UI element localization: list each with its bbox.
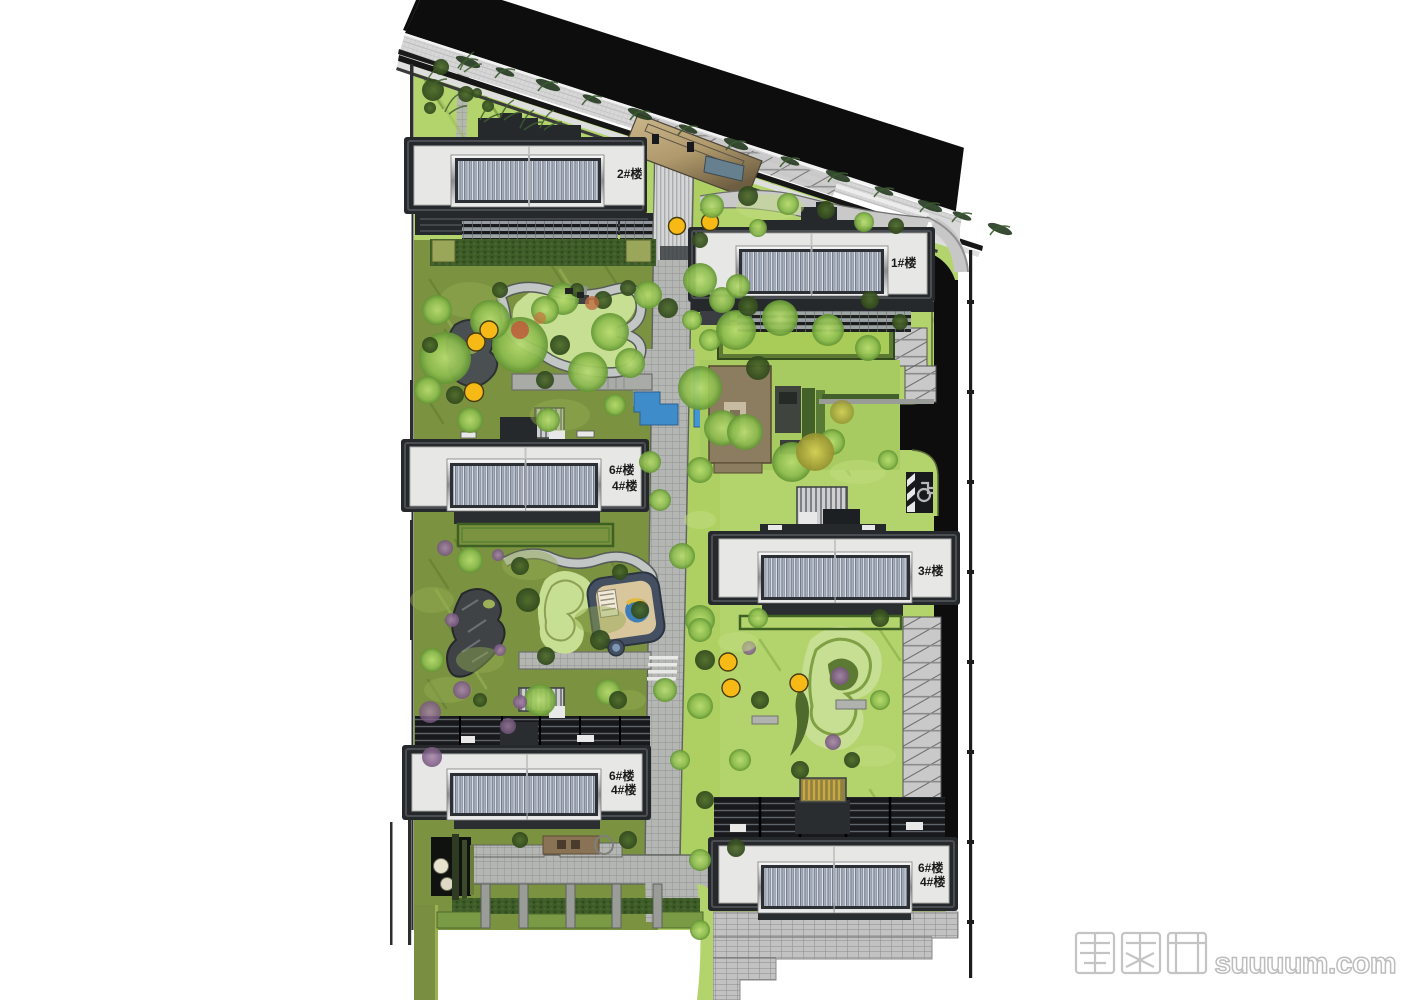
svg-text:suuuum.com: suuuum.com (1214, 947, 1396, 980)
svg-text:3#楼: 3#楼 (918, 563, 943, 578)
svg-text:6#楼: 6#楼 (609, 462, 634, 477)
svg-text:4#楼: 4#楼 (612, 478, 637, 493)
svg-text:6#楼: 6#楼 (918, 860, 943, 875)
svg-text:6#楼: 6#楼 (609, 768, 634, 783)
svg-text:4#楼: 4#楼 (920, 874, 945, 889)
svg-text:4#楼: 4#楼 (611, 782, 636, 797)
svg-text:1#楼: 1#楼 (891, 255, 916, 270)
svg-text:2#楼: 2#楼 (617, 166, 642, 181)
